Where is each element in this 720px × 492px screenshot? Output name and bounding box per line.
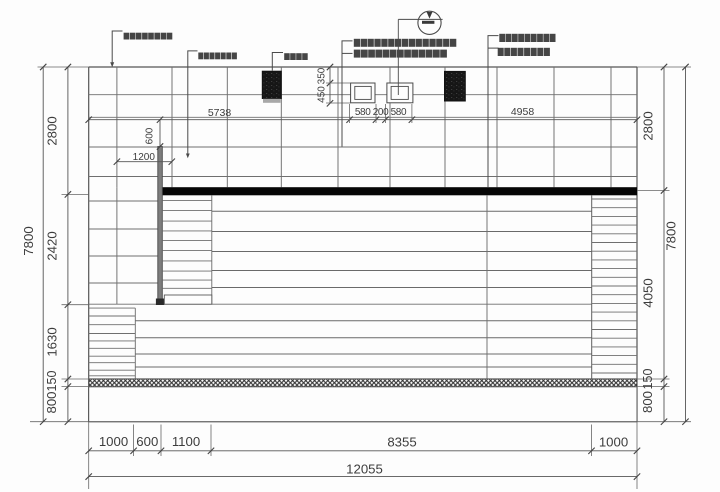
svg-text:1200: 1200: [133, 152, 156, 163]
svg-text:580 200 580: 580 200 580: [355, 107, 407, 118]
svg-text:2800: 2800: [45, 116, 60, 145]
svg-text:8355: 8355: [387, 435, 416, 450]
svg-text:1100: 1100: [172, 434, 200, 449]
svg-text:7800: 7800: [21, 226, 36, 255]
svg-text:150: 150: [45, 371, 59, 392]
svg-text:7800: 7800: [664, 221, 679, 250]
svg-text:350: 350: [317, 67, 328, 84]
svg-text:12055: 12055: [346, 462, 383, 477]
svg-text:600: 600: [136, 434, 158, 449]
svg-text:450: 450: [317, 86, 328, 103]
svg-text:4958: 4958: [511, 106, 535, 118]
svg-text:1000: 1000: [599, 435, 628, 450]
svg-text:600: 600: [145, 127, 156, 144]
svg-text:2420: 2420: [45, 231, 60, 260]
svg-text:800: 800: [44, 391, 59, 413]
svg-text:1000: 1000: [99, 434, 128, 449]
svg-text:4050: 4050: [641, 278, 656, 307]
svg-text:5738: 5738: [208, 107, 232, 119]
svg-text:150: 150: [641, 369, 655, 390]
svg-text:1630: 1630: [45, 327, 60, 356]
svg-text:2800: 2800: [641, 111, 656, 140]
svg-text:800: 800: [640, 391, 655, 413]
